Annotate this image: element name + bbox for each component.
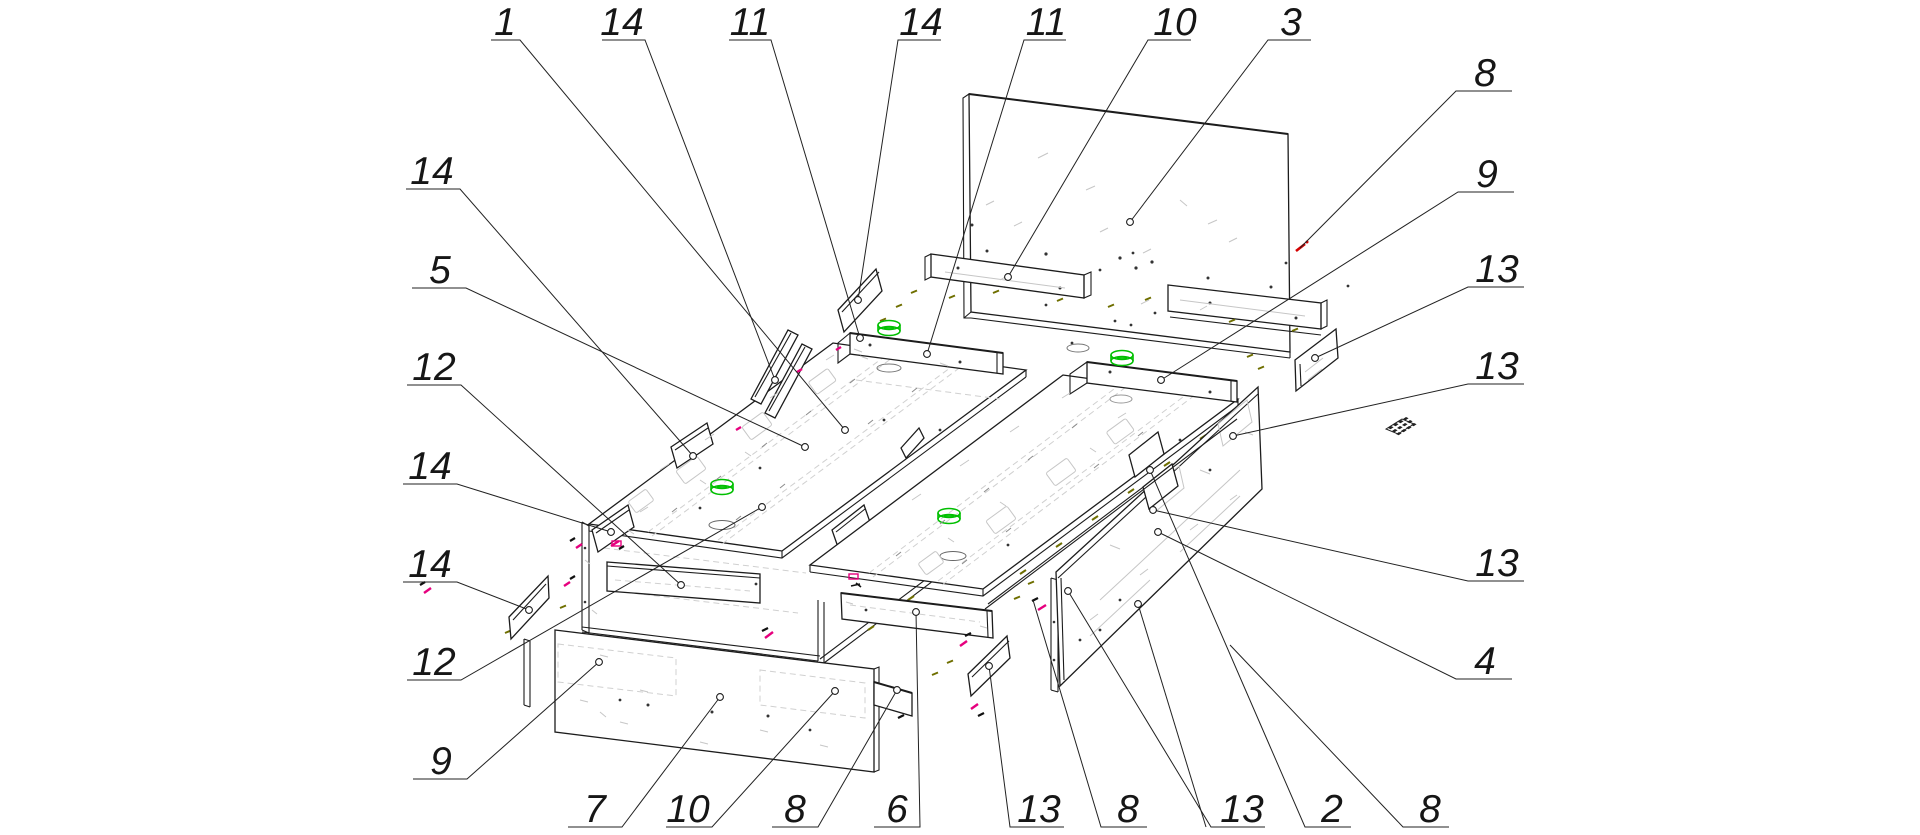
svg-text:14: 14 [408,445,451,488]
svg-text:8: 8 [1117,788,1139,831]
svg-text:8: 8 [784,788,806,831]
svg-text:3: 3 [1280,1,1302,44]
svg-text:1: 1 [494,1,516,44]
svg-text:13: 13 [1475,542,1519,585]
svg-text:13: 13 [1017,788,1061,831]
svg-text:11: 11 [1026,1,1067,44]
svg-text:10: 10 [1153,1,1197,44]
svg-text:4: 4 [1474,640,1496,683]
svg-text:5: 5 [429,249,451,292]
svg-text:7: 7 [584,788,607,831]
svg-text:14: 14 [899,1,942,44]
svg-text:9: 9 [430,740,452,783]
svg-text:14: 14 [600,1,643,44]
svg-text:8: 8 [1419,788,1441,831]
svg-text:8: 8 [1474,52,1496,95]
svg-text:11: 11 [730,1,771,44]
svg-text:14: 14 [410,150,453,193]
svg-text:13: 13 [1220,788,1264,831]
svg-text:2: 2 [1320,788,1343,831]
svg-text:10: 10 [666,788,710,831]
svg-text:13: 13 [1475,248,1519,291]
svg-text:9: 9 [1476,153,1498,196]
svg-text:12: 12 [412,346,456,389]
svg-text:12: 12 [412,641,456,684]
svg-text:14: 14 [408,543,451,586]
svg-text:13: 13 [1475,345,1519,388]
svg-text:6: 6 [886,788,908,831]
